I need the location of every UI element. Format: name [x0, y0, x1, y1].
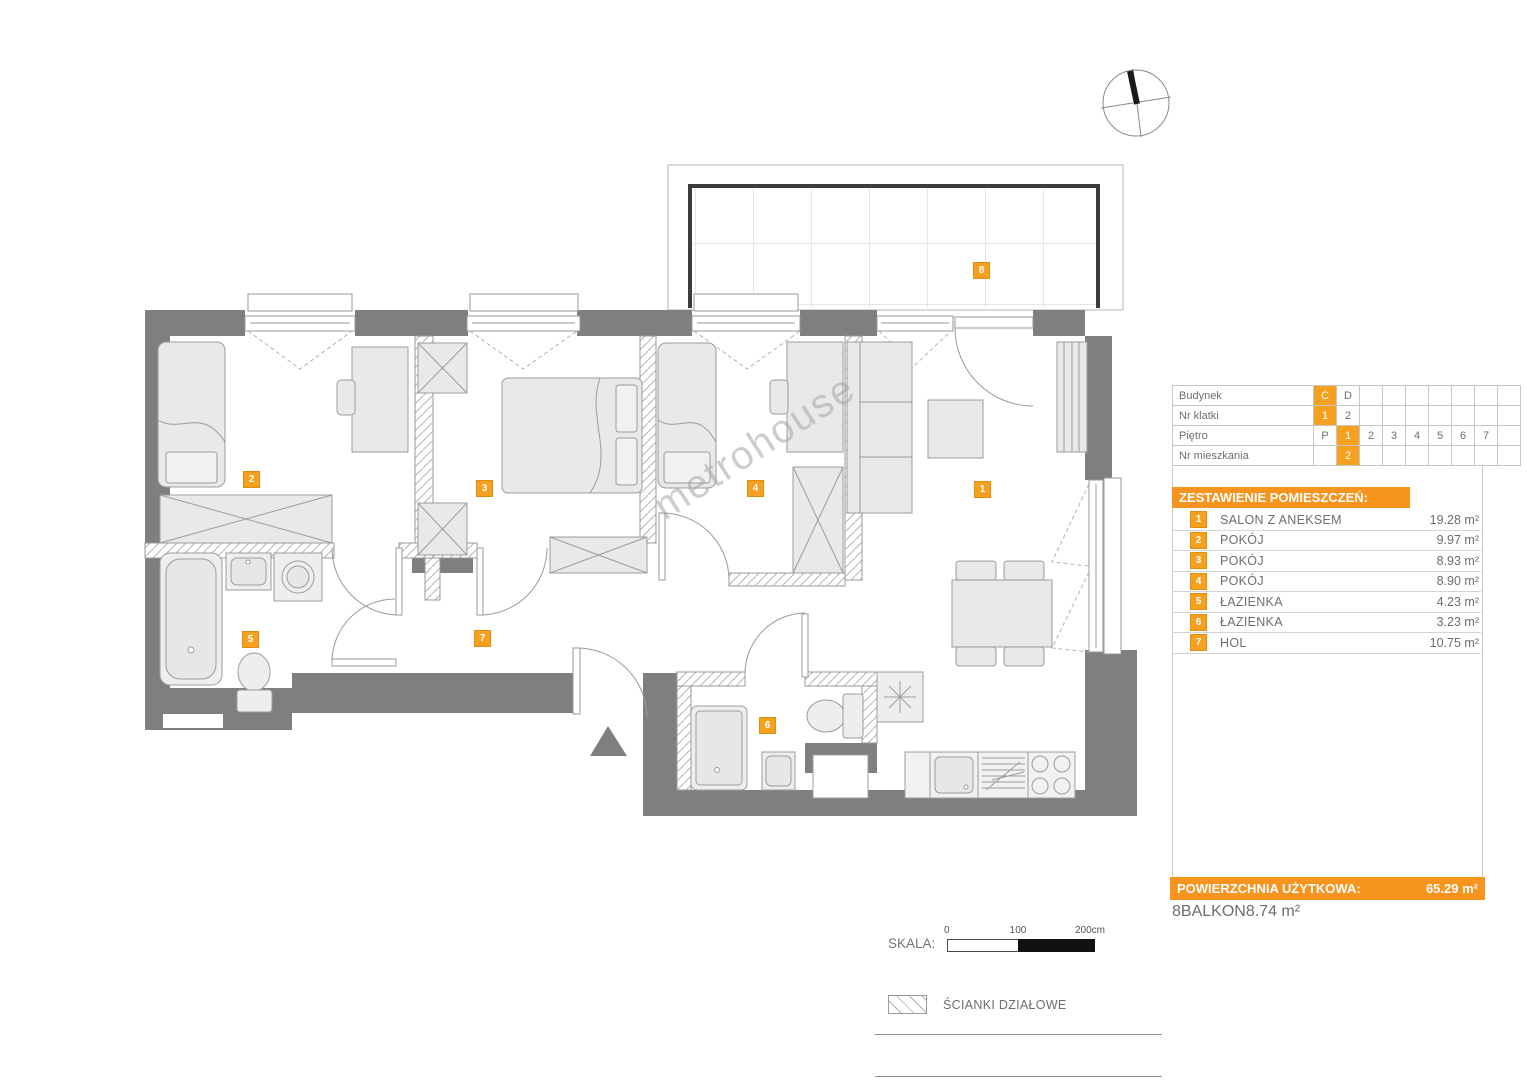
info-row-label: Piętro: [1173, 426, 1314, 446]
room-badge-pokoj4: 4: [747, 480, 764, 497]
info-cell: [1475, 406, 1498, 426]
room-list-item: 3 POKÓJ 8.93 m²: [1172, 551, 1481, 572]
building-info-table: Budynek C D Nr klatki 1 2 Piętro P 1 2 3…: [1172, 385, 1521, 466]
info-cell: D: [1337, 386, 1360, 406]
room-badge-lazienka5: 5: [242, 631, 259, 648]
legend-title: ZESTAWIENIE POMIESZCZEŃ:: [1172, 487, 1410, 508]
info-cell: [1475, 446, 1498, 466]
partition-legend-label: ŚCIANKI DZIAŁOWE: [943, 998, 1067, 1012]
info-cell: 7: [1475, 426, 1498, 446]
divider-line: [875, 1034, 1162, 1035]
floorplan-page: metrohouse 1 2 3 4 5 6 7 8 Budynek C D N…: [0, 0, 1527, 1080]
room-area: 19.28 m²: [1430, 513, 1479, 527]
info-cell: [1498, 426, 1521, 446]
room-area: 9.97 m²: [1437, 533, 1479, 547]
divider-line: [875, 1076, 1162, 1077]
room-number-badge: 6: [1190, 614, 1207, 631]
room-name: POKÓJ: [1220, 533, 1264, 547]
toilet: [238, 653, 270, 691]
room-number-badge: 7: [1190, 634, 1207, 651]
info-cell: 6: [1452, 426, 1475, 446]
info-cell: [1383, 386, 1406, 406]
usable-area-bar: POWIERZCHNIA UŻYTKOWA: 65.29 m²: [1170, 877, 1485, 900]
compass-icon: [1101, 69, 1171, 137]
info-cell: 2: [1337, 446, 1360, 466]
room-list-item: 1 SALON Z ANEKSEM 19.28 m²: [1172, 510, 1481, 531]
balcony: [668, 165, 1123, 310]
room-list-item: 2 POKÓJ 9.97 m²: [1172, 531, 1481, 552]
scale-bar-black: [1018, 939, 1095, 952]
room-badge-lazienka6: 6: [759, 717, 776, 734]
info-row-label: Budynek: [1173, 386, 1314, 406]
info-cell: [1452, 386, 1475, 406]
north-needle: [1130, 71, 1137, 104]
info-cell: [1406, 446, 1429, 466]
info-cell: [1383, 446, 1406, 466]
room-badge-hol: 7: [474, 630, 491, 647]
room-number-badge: 2: [1190, 532, 1207, 549]
pillow: [616, 385, 637, 432]
chair: [956, 647, 996, 666]
room-number-badge: 1: [1190, 511, 1207, 528]
info-cell: [1452, 446, 1475, 466]
room-name: SALON Z ANEKSEM: [1220, 513, 1342, 527]
room-area: 10.75 m²: [1430, 636, 1479, 650]
room-badge-pokoj3: 3: [476, 480, 493, 497]
scale-label: SKALA:: [888, 936, 935, 951]
info-cell: 1: [1314, 406, 1337, 426]
room-area: 3.23 m²: [1437, 615, 1479, 629]
info-cell: 2: [1360, 426, 1383, 446]
room-badge-pokoj2: 2: [243, 471, 260, 488]
scale-tick-200: 200cm: [1075, 925, 1105, 936]
chair: [956, 561, 996, 580]
room-name: POKÓJ: [1220, 554, 1264, 568]
room-name: HOL: [1220, 636, 1247, 650]
room2-furniture: [158, 342, 408, 543]
room-badge-salon: 1: [974, 481, 991, 498]
room-name: ŁAZIENKA: [1220, 595, 1283, 609]
pillow: [616, 438, 637, 485]
info-cell: [1383, 406, 1406, 426]
info-cell: [1498, 446, 1521, 466]
info-cell: [1360, 386, 1383, 406]
info-cell: 1: [1337, 426, 1360, 446]
info-cell: [1452, 406, 1475, 426]
info-cell: [1429, 406, 1452, 426]
room-list-item: 4 POKÓJ 8.90 m²: [1172, 572, 1481, 593]
chair: [1004, 561, 1044, 580]
info-cell: 3: [1383, 426, 1406, 446]
info-cell: 5: [1429, 426, 1452, 446]
scale-tick-0: 0: [944, 925, 950, 936]
room-list-item: 5 ŁAZIENKA 4.23 m²: [1172, 592, 1481, 613]
info-cell: 4: [1406, 426, 1429, 446]
info-cell: [1475, 386, 1498, 406]
info-row-label: Nr mieszkania: [1173, 446, 1314, 466]
info-cell: C: [1314, 386, 1337, 406]
info-cell: [1406, 386, 1429, 406]
desk: [352, 347, 408, 452]
coffee-table: [928, 400, 983, 458]
room-name: POKÓJ: [1220, 574, 1264, 588]
scale-tick-100: 100: [1003, 925, 1033, 936]
room-name: ŁAZIENKA: [1220, 615, 1283, 629]
info-row-label: Nr klatki: [1173, 406, 1314, 426]
room-number-badge: 4: [1190, 573, 1207, 590]
toilet: [807, 700, 845, 732]
room-area: 4.23 m²: [1437, 595, 1479, 609]
info-cell: [1360, 446, 1383, 466]
room-list-item: 7 HOL 10.75 m²: [1172, 633, 1481, 654]
room-list: 1 SALON Z ANEKSEM 19.28 m² 2 POKÓJ 9.97 …: [1172, 510, 1481, 654]
kitchen: [877, 672, 1075, 798]
info-cell: P: [1314, 426, 1337, 446]
dining-table: [952, 580, 1052, 647]
info-cell: [1498, 406, 1521, 426]
usable-area-value: 65.29 m²: [1426, 877, 1478, 900]
balcony-row: 8 BALKON 8.74 m²: [1172, 901, 1481, 922]
chair: [1004, 647, 1044, 666]
info-cell: [1314, 446, 1337, 466]
info-cell: [1406, 406, 1429, 426]
room-number-badge: 8: [1172, 903, 1181, 921]
room-name: BALKON: [1181, 903, 1246, 921]
pillow: [166, 452, 217, 483]
info-cell: [1360, 406, 1383, 426]
room-area: 8.90 m²: [1437, 574, 1479, 588]
usable-area-label: POWIERZCHNIA UŻYTKOWA:: [1177, 877, 1361, 900]
shaft: [813, 755, 868, 798]
room-badge-balkon: 8: [973, 262, 990, 279]
room-number-badge: 3: [1190, 552, 1207, 569]
room-area: 8.93 m²: [1437, 554, 1479, 568]
info-cell: [1429, 446, 1452, 466]
room-area: 8.74 m²: [1246, 903, 1300, 921]
partition-hatch-swatch: [888, 995, 927, 1014]
scale-bar-white: [947, 939, 1020, 952]
room-number-badge: 5: [1190, 593, 1207, 610]
info-cell: [1498, 386, 1521, 406]
info-cell: [1429, 386, 1452, 406]
room-list-item: 6 ŁAZIENKA 3.23 m²: [1172, 613, 1481, 634]
chair: [337, 380, 355, 415]
info-cell: 2: [1337, 406, 1360, 426]
